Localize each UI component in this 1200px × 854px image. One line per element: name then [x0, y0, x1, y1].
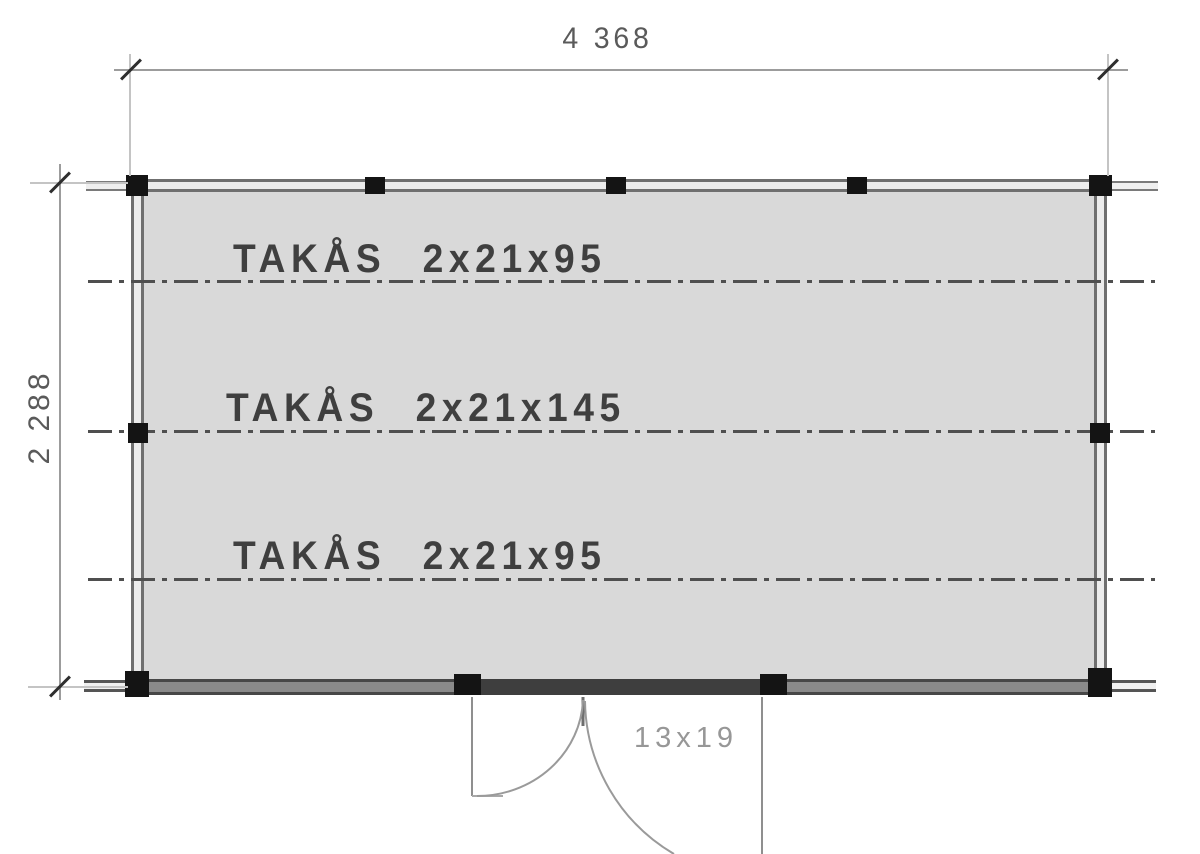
floor-plan-drawing: TAKÅS 2x21x95 TAKÅS 2x21x145 TAKÅS 2x21x…: [0, 0, 1200, 854]
door-label: 13x19: [634, 722, 738, 755]
door-swing-icon: [0, 0, 1200, 854]
